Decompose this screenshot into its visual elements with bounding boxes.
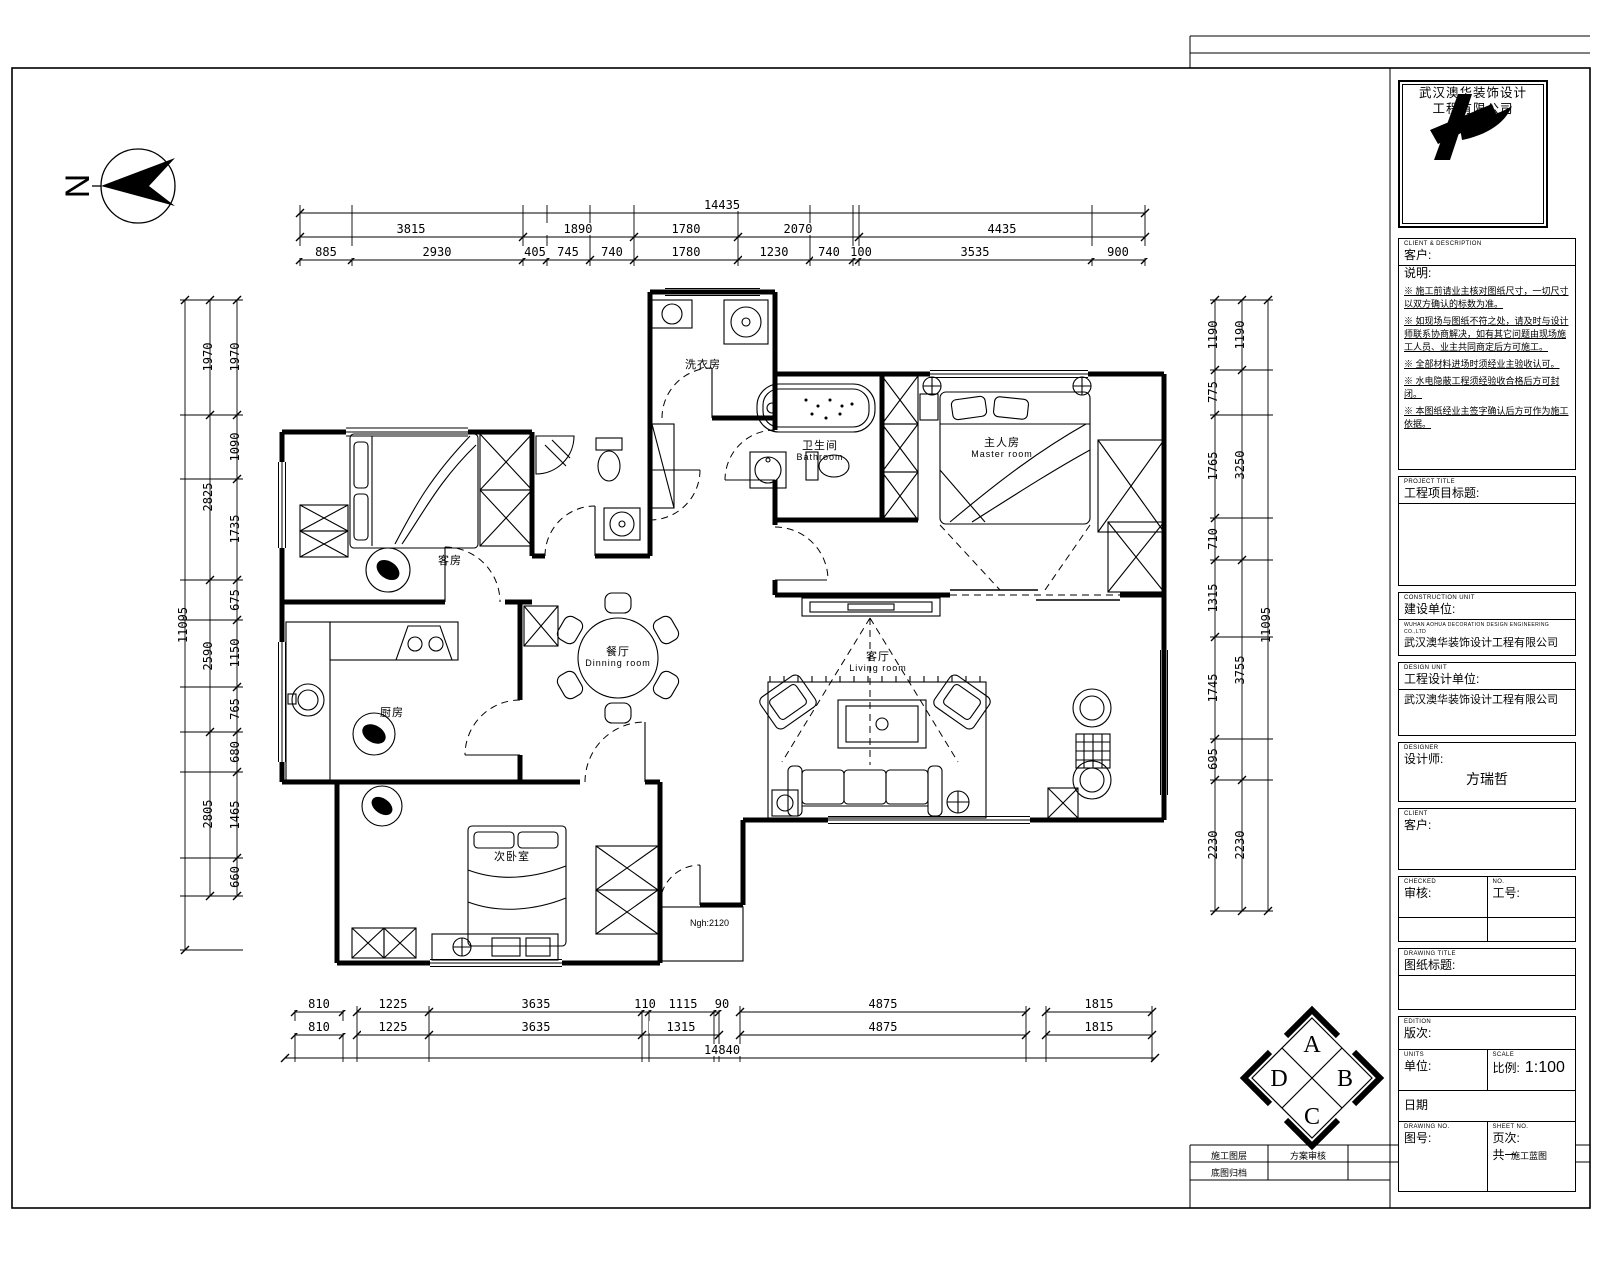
strip-cell-3: 施工蓝图 [1489,1149,1569,1162]
dim: 2230 [1207,813,1219,877]
dim: 1765 [1207,434,1219,498]
notes-list: ※ 施工前请业主核对图纸尺寸，一切尺寸以双方确认的标数为准。 ※ 如现场与图纸不… [1399,283,1575,439]
sheet-label: 页次: [1488,1131,1576,1148]
note-item: ※ 本图纸经业主签字确认后方可作为施工依据。 [1404,405,1570,431]
units-label: 单位: [1399,1059,1487,1076]
room-label-guest: 客房 [380,552,520,568]
dim: 3815 [379,223,443,235]
drawing-sheet: { "north_letter": "N", "dims": { "top1":… [0,0,1600,1280]
dim: 3635 [504,998,568,1010]
dim: 1315 [649,1021,713,1033]
design-unit-tiny: DESIGN UNIT [1399,663,1575,672]
company-logo-box: 武汉澳华装饰设计 工程有限公司 [1398,80,1548,228]
company-logo-icon [1400,82,1520,170]
room-label-bath-en: Bathroom [750,452,890,462]
dim: 740 [595,246,629,258]
dim: 900 [1086,246,1150,258]
sheet-frame [12,36,1590,1208]
dim: 1115 [664,998,702,1010]
room-label-kitchen: 厨房 [322,704,462,720]
room-label-laundry: 洗衣房 [633,356,773,372]
titleblock-drawing-title: DRAWING TITLE 图纸标题: [1398,948,1576,1010]
svg-text:N: N [59,174,97,199]
dim: 1890 [546,223,610,235]
strip-cell-1: 施工图层 [1189,1149,1269,1162]
dim: 745 [551,246,585,258]
jobno-tiny: NO. [1488,877,1576,886]
elevation-marker-icon: A B C D [1244,1010,1380,1146]
dim: 710 [1207,507,1219,571]
titleblock-project: PROJECT TITLE 工程项目标题: [1398,476,1576,586]
titleblock-check-job: CHECKED 审核: NO. 工号: [1398,876,1576,942]
dim: 3250 [1234,433,1246,497]
sign-tiny: CLIENT [1399,809,1575,818]
owner-label: 建设单位: [1399,602,1575,620]
note-item: ※ 全部材料进场时须经业主验收认可。 [1404,358,1570,371]
titleblock-designer: DESIGNER 设计师: 方瑞哲 [1398,742,1576,802]
dim: 810 [287,1021,351,1033]
dim: 1815 [1067,1021,1131,1033]
room-label-bath: 卫生间 [750,437,890,453]
note-item: ※ 水电隐蔽工程须经验收合格后方可封闭。 [1404,375,1570,401]
dwgno-cell: DRAWING NO. 图号: [1399,1122,1487,1192]
scale-tiny: SCALE [1488,1050,1576,1059]
walls [282,292,1164,963]
room-label-dining: 餐厅 [548,643,688,659]
dim: 1315 [1207,566,1219,630]
sheet-tiny: SHEET NO. [1488,1122,1576,1131]
dim: 3535 [943,246,1007,258]
empty-cell [1399,918,1487,942]
check-label: 审核: [1399,886,1487,903]
designer-label: 设计师: [1399,752,1575,769]
windows [279,289,1168,967]
jobno-cell: NO. 工号: [1487,877,1576,917]
dwgno-label: 图号: [1399,1131,1487,1148]
empty-cell [1487,918,1576,942]
owner-value-tiny: WUHAN AOHUA DECORATION DESIGN ENGINEERIN… [1399,620,1575,636]
titleblock-client-notes: CLIENT & DESCRIPTION 客户: 说明: ※ 施工前请业主核对图… [1398,238,1576,470]
titleblock-footer: EDITION 版次: UNITS 单位: SCALE 比例: 1:100 日期… [1398,1016,1576,1192]
dwgtitle-label: 图纸标题: [1399,958,1575,976]
titleblock-sign: CLIENT 客户: [1398,808,1576,870]
dim: 2230 [1234,813,1246,877]
strip-cell-2: 方案审核 [1268,1149,1348,1162]
titleblock-design-unit: DESIGN UNIT 工程设计单位: 武汉澳华装饰设计工程有限公司 [1398,662,1576,736]
dim: 1735 [229,497,241,561]
svg-text:D: D [1270,1066,1287,1092]
room-label-master-en: Master room [932,449,1072,459]
dwgtitle-tiny: DRAWING TITLE [1399,949,1575,958]
dim-bottom-overall: 14840 [690,1044,754,1056]
dim: 2590 [202,624,214,688]
dimension-lines [180,205,1273,1062]
dim: 1090 [229,415,241,479]
room-label-dining-en: Dinning room [548,658,688,668]
date-label: 日期 [1399,1091,1575,1115]
dim: 1970 [229,325,241,389]
dim: 1190 [1207,303,1219,367]
room-label-master: 主人房 [932,434,1072,450]
door-height-note: Ngh:2120 [690,918,729,928]
dim: 110 [630,998,660,1010]
project-label: 工程项目标题: [1399,486,1575,504]
dim: 1745 [1207,656,1219,720]
dim: 695 [1207,727,1219,791]
dim: 4435 [970,223,1034,235]
units-cell: UNITS 单位: [1399,1050,1487,1090]
dim: 4875 [851,998,915,1010]
designer-tiny: DESIGNER [1399,743,1575,752]
dim: 405 [518,246,552,258]
dim: 3755 [1234,638,1246,702]
dim: 885 [294,246,358,258]
dim: 1465 [229,783,241,847]
dim-left-overall: 11095 [177,593,189,657]
note-item: ※ 如现场与图纸不符之处，请及时与设计师联系协商解决，如有其它问题由现场施工人员… [1404,315,1570,354]
dim: 1225 [361,998,425,1010]
description-label: 说明: [1399,266,1575,283]
dwgno-tiny: DRAWING NO. [1399,1122,1487,1131]
dim: 100 [847,246,875,258]
svg-text:A: A [1303,1032,1321,1058]
dim: 1780 [654,246,718,258]
dim: 810 [287,998,351,1010]
dim: 1150 [229,621,241,685]
furniture [286,300,1164,961]
check-tiny: CHECKED [1399,877,1487,886]
project-tiny-label: PROJECT TITLE [1399,477,1575,486]
titleblock-owner: CONSTRUCTION UNIT 建设单位: WUHAN AOHUA DECO… [1398,592,1576,656]
jobno-label: 工号: [1488,886,1576,903]
dim: 775 [1207,360,1219,424]
dim: 680 [229,720,241,784]
north-arrow-icon: N [59,149,175,223]
svg-text:B: B [1337,1066,1353,1092]
dim: 1190 [1234,303,1246,367]
dim: 3635 [504,1021,568,1033]
dim: 2805 [202,782,214,846]
note-item: ※ 施工前请业主核对图纸尺寸，一切尺寸以双方确认的标数为准。 [1404,285,1570,311]
units-tiny: UNITS [1399,1050,1487,1059]
scale-label: 比例: [1488,1061,1525,1078]
dim: 660 [229,845,241,909]
dim: 4875 [851,1021,915,1033]
owner-value: 武汉澳华装饰设计工程有限公司 [1399,636,1575,653]
design-unit-value: 武汉澳华装饰设计工程有限公司 [1399,690,1575,710]
dim: 1780 [654,223,718,235]
dim: 2825 [202,465,214,529]
room-label-living-en: Living room [808,663,948,673]
dim: 1815 [1067,998,1131,1010]
owner-tiny-label: CONSTRUCTION UNIT [1399,593,1575,602]
designer-value: 方瑞哲 [1399,769,1575,789]
dim: 1230 [742,246,806,258]
strip-cell-4: 底图归档 [1189,1166,1269,1179]
client-tiny-label: CLIENT & DESCRIPTION [1399,239,1575,248]
client-label: 客户: [1399,248,1575,266]
dim: 1970 [202,325,214,389]
dim-right-overall: 11095 [1260,593,1272,657]
room-label-living: 客厅 [808,648,948,664]
dim: 2930 [405,246,469,258]
sign-label: 客户: [1399,818,1575,835]
room-label-bedroom2: 次卧室 [442,848,582,864]
edition-tiny: EDITION [1399,1017,1575,1026]
edition-label: 版次: [1399,1026,1575,1043]
scale-value: 1:100 [1525,1059,1565,1077]
dim: 740 [813,246,845,258]
scale-cell: SCALE 比例: 1:100 [1487,1050,1576,1090]
check-cell: CHECKED 审核: [1399,877,1487,917]
dim: 90 [710,998,734,1010]
design-unit-label: 工程设计单位: [1399,672,1575,690]
dim: 1225 [361,1021,425,1033]
dim: 2070 [766,223,830,235]
dim-top-overall: 14435 [690,199,754,211]
svg-text:C: C [1304,1104,1320,1130]
